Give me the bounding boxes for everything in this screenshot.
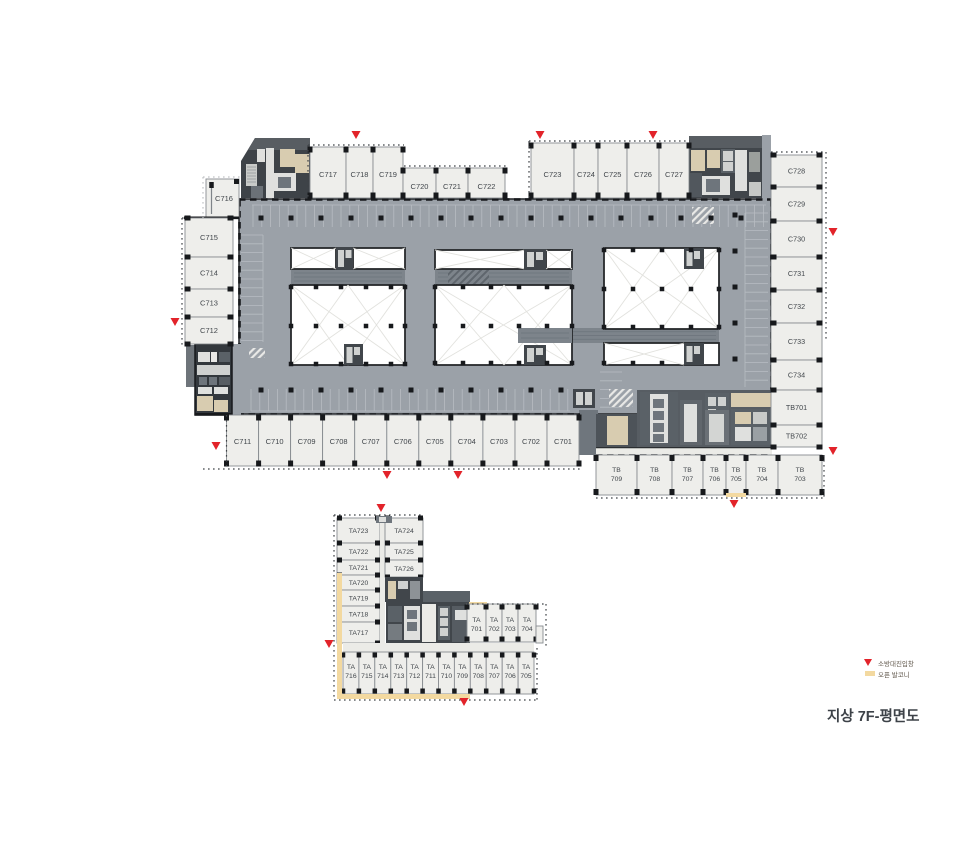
svg-text:TA: TA — [490, 617, 499, 624]
svg-text:TA: TA — [458, 664, 467, 671]
svg-text:703: 703 — [794, 476, 806, 483]
svg-text:TB: TB — [796, 467, 805, 474]
svg-text:C707: C707 — [362, 437, 380, 446]
svg-text:714: 714 — [377, 673, 389, 680]
svg-text:TB: TB — [650, 467, 659, 474]
svg-text:TA: TA — [472, 617, 481, 624]
svg-text:TA719: TA719 — [349, 596, 369, 603]
svg-text:C727: C727 — [665, 170, 683, 179]
svg-text:TA720: TA720 — [349, 580, 369, 587]
svg-text:TA: TA — [506, 617, 515, 624]
svg-text:TA: TA — [363, 664, 372, 671]
svg-text:C719: C719 — [379, 170, 397, 179]
svg-text:C701: C701 — [554, 437, 572, 446]
svg-text:C717: C717 — [319, 170, 337, 179]
svg-text:706: 706 — [504, 673, 516, 680]
svg-text:TA721: TA721 — [349, 565, 369, 572]
svg-text:TA718: TA718 — [349, 612, 369, 619]
svg-text:TA: TA — [347, 664, 356, 671]
svg-text:C712: C712 — [200, 326, 218, 335]
svg-text:C703: C703 — [490, 437, 508, 446]
svg-text:TA723: TA723 — [349, 528, 369, 535]
svg-text:TA717: TA717 — [349, 630, 369, 637]
svg-text:소방대진입창: 소방대진입창 — [878, 659, 914, 668]
svg-text:TA: TA — [395, 664, 404, 671]
svg-text:C732: C732 — [788, 302, 805, 311]
svg-text:712: 712 — [409, 673, 421, 680]
svg-text:C725: C725 — [604, 170, 622, 179]
svg-text:C718: C718 — [351, 170, 369, 179]
svg-text:C728: C728 — [788, 167, 805, 176]
svg-text:709: 709 — [457, 673, 469, 680]
svg-text:C722: C722 — [478, 182, 496, 191]
svg-text:TB: TB — [683, 467, 692, 474]
svg-text:C729: C729 — [788, 200, 805, 209]
svg-text:TB701: TB701 — [786, 403, 807, 412]
svg-text:707: 707 — [682, 476, 694, 483]
svg-text:706: 706 — [709, 476, 721, 483]
svg-text:TA: TA — [523, 617, 532, 624]
svg-text:C721: C721 — [443, 182, 461, 191]
svg-text:TA: TA — [379, 664, 388, 671]
svg-text:C709: C709 — [298, 437, 316, 446]
svg-text:TB702: TB702 — [786, 432, 807, 441]
svg-text:C723: C723 — [544, 170, 562, 179]
svg-text:708: 708 — [473, 673, 485, 680]
svg-text:716: 716 — [345, 673, 357, 680]
svg-text:715: 715 — [361, 673, 373, 680]
svg-text:703: 703 — [504, 626, 516, 633]
svg-text:TA: TA — [522, 664, 531, 671]
svg-text:C716: C716 — [215, 194, 233, 203]
svg-text:TA725: TA725 — [394, 549, 414, 556]
svg-text:TA: TA — [474, 664, 483, 671]
svg-text:705: 705 — [730, 476, 742, 483]
svg-text:C731: C731 — [788, 269, 805, 278]
svg-text:C720: C720 — [411, 182, 429, 191]
svg-text:710: 710 — [441, 673, 453, 680]
svg-text:C733: C733 — [788, 337, 805, 346]
svg-text:C704: C704 — [458, 437, 476, 446]
svg-text:TB: TB — [612, 467, 621, 474]
svg-text:708: 708 — [649, 476, 661, 483]
svg-text:C724: C724 — [577, 170, 595, 179]
svg-text:C710: C710 — [266, 437, 284, 446]
svg-text:TA: TA — [506, 664, 515, 671]
svg-text:713: 713 — [393, 673, 405, 680]
svg-text:707: 707 — [489, 673, 501, 680]
svg-text:TA726: TA726 — [394, 566, 414, 573]
svg-text:TB: TB — [732, 467, 741, 474]
svg-text:지상 7F-평면도: 지상 7F-평면도 — [827, 707, 919, 725]
svg-text:C711: C711 — [234, 437, 251, 446]
svg-text:TB: TB — [758, 467, 767, 474]
svg-text:701: 701 — [471, 626, 483, 633]
svg-text:704: 704 — [521, 626, 533, 633]
svg-text:C730: C730 — [788, 235, 805, 244]
svg-text:C702: C702 — [522, 437, 540, 446]
svg-text:C705: C705 — [426, 437, 444, 446]
svg-text:C726: C726 — [634, 170, 652, 179]
svg-text:711: 711 — [425, 673, 436, 680]
svg-text:704: 704 — [756, 476, 768, 483]
svg-text:C715: C715 — [200, 233, 218, 242]
svg-text:TA: TA — [426, 664, 435, 671]
svg-text:C708: C708 — [330, 437, 348, 446]
svg-text:TA724: TA724 — [394, 528, 414, 535]
svg-text:TA: TA — [490, 664, 499, 671]
svg-text:TA722: TA722 — [349, 549, 369, 556]
svg-text:TB: TB — [710, 467, 719, 474]
svg-text:TA: TA — [442, 664, 451, 671]
svg-text:C713: C713 — [200, 299, 218, 308]
svg-text:702: 702 — [488, 626, 500, 633]
svg-text:C734: C734 — [788, 371, 805, 380]
svg-text:709: 709 — [611, 476, 623, 483]
svg-text:오픈 발코니: 오픈 발코니 — [878, 670, 910, 679]
svg-text:C706: C706 — [394, 437, 412, 446]
svg-text:TA: TA — [411, 664, 420, 671]
svg-text:705: 705 — [520, 673, 532, 680]
svg-text:C714: C714 — [200, 269, 218, 278]
